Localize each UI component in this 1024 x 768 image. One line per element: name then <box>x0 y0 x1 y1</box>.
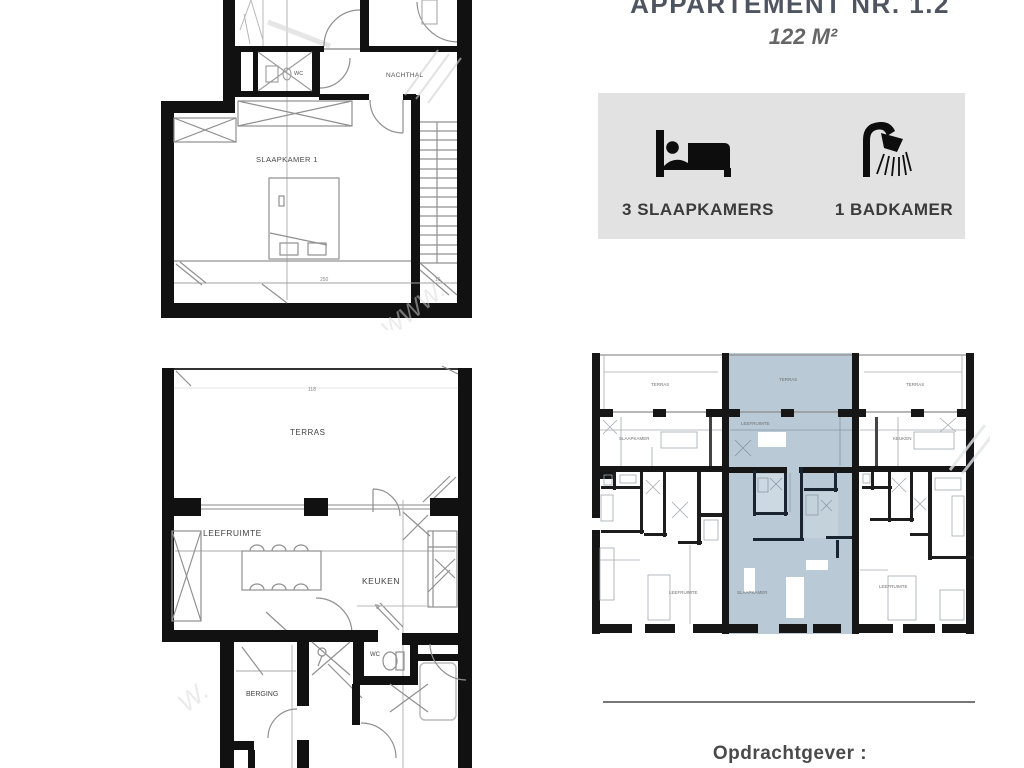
svg-text:TERRAS: TERRAS <box>779 377 797 382</box>
svg-text:SLAAPKAMER: SLAAPKAMER <box>619 436 650 441</box>
svg-text:KEUKEN: KEUKEN <box>893 436 912 441</box>
svg-text:KEUKEN: KEUKEN <box>362 576 400 586</box>
svg-text:WC: WC <box>294 71 303 77</box>
svg-text:TERRAS: TERRAS <box>651 382 669 387</box>
svg-text:WC: WC <box>370 652 381 658</box>
svg-text:LEEFRUIMTE: LEEFRUIMTE <box>741 421 770 426</box>
svg-text:SLAAPKAMER: SLAAPKAMER <box>737 590 768 595</box>
svg-text:LEEFRUIMTE: LEEFRUIMTE <box>669 590 698 595</box>
svg-text:TERRAS: TERRAS <box>290 428 325 437</box>
svg-text:SLAAPKAMER 1: SLAAPKAMER 1 <box>256 155 318 164</box>
svg-text:250: 250 <box>320 277 329 283</box>
svg-text:LEEFRUIMTE: LEEFRUIMTE <box>879 584 908 589</box>
svg-text:TERRAS: TERRAS <box>906 382 924 387</box>
svg-text:W.: W. <box>172 675 215 718</box>
svg-text:BERGING: BERGING <box>246 691 278 698</box>
svg-text:118: 118 <box>308 387 316 393</box>
svg-text:LEEFRUIMTE: LEEFRUIMTE <box>203 528 262 538</box>
